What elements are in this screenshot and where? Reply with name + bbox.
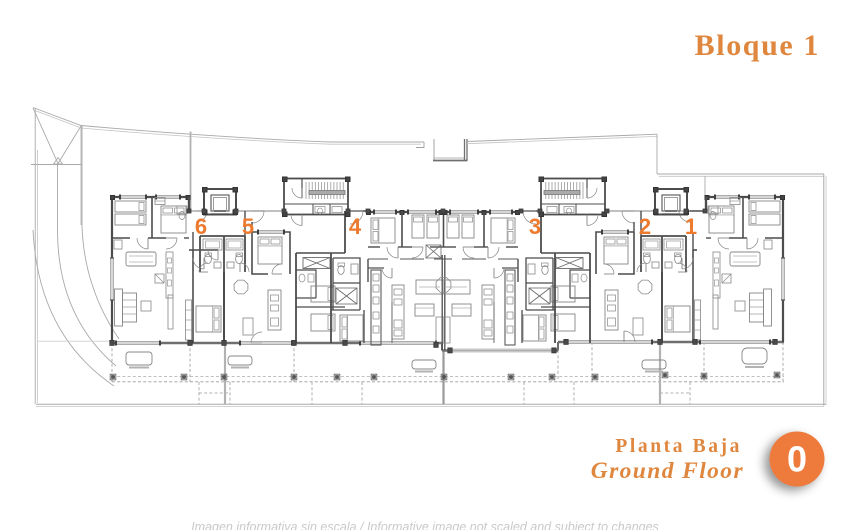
svg-text:Bloque 1: Bloque 1: [695, 29, 820, 62]
svg-text:2: 2: [639, 214, 651, 239]
svg-text:Planta Baja: Planta Baja: [615, 436, 742, 457]
svg-text:1: 1: [685, 214, 697, 239]
svg-text:6: 6: [195, 214, 207, 239]
svg-text:0: 0: [787, 439, 807, 480]
svg-text:4: 4: [349, 214, 362, 239]
svg-text:3: 3: [529, 214, 541, 239]
svg-text:Ground Floor: Ground Floor: [591, 458, 744, 484]
svg-text:Imagen informativa sin escala: Imagen informativa sin escala / Informat…: [191, 520, 659, 530]
svg-text:5: 5: [242, 214, 254, 239]
